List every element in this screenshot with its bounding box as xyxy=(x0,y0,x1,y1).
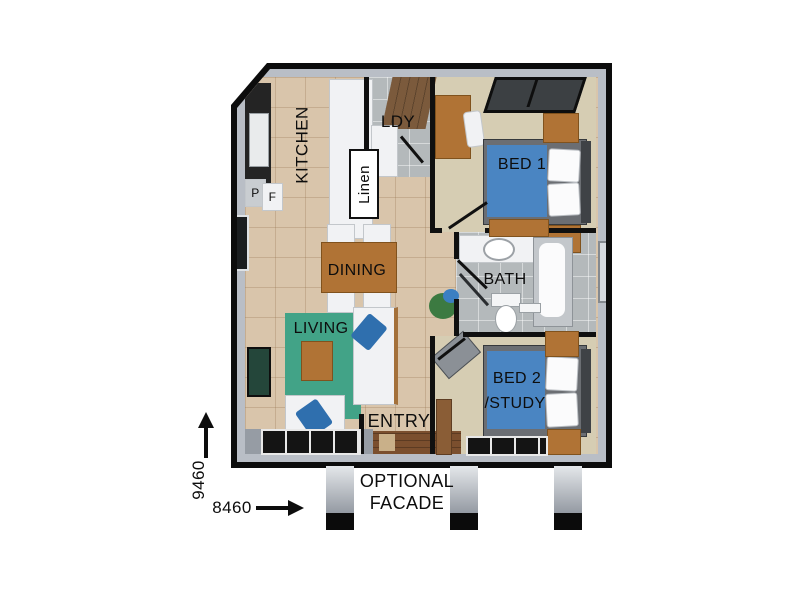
right-wall-window xyxy=(598,241,614,303)
wall-band: P F Linen xyxy=(237,69,606,462)
vertical-dimension: 9460 xyxy=(189,457,209,503)
kitchen-label: KITCHEN xyxy=(293,106,313,183)
toilet-bowl xyxy=(495,305,517,333)
wall-laundry-bed1 xyxy=(430,77,435,233)
dining-label: DINING xyxy=(323,261,391,281)
left-wall-window xyxy=(231,215,249,271)
entry-step xyxy=(379,434,395,451)
bed2-headboard xyxy=(581,349,591,433)
porch-column-base xyxy=(326,513,354,530)
entry-door-leaf xyxy=(436,399,452,455)
bath-label: BATH xyxy=(475,270,535,290)
coffee-table xyxy=(301,341,333,381)
bathtub-inner xyxy=(539,243,565,317)
horizontal-dimension: 8460 xyxy=(206,498,258,518)
bed2-bedside-top xyxy=(545,331,579,357)
fridge-label: F xyxy=(269,190,277,204)
bed2-pillow-top xyxy=(545,356,579,392)
laundry-label: LDY xyxy=(376,112,420,132)
facade-label-line1: OPTIONAL xyxy=(352,470,462,492)
wall-hall-bath-upper xyxy=(454,232,459,259)
linen-label: Linen xyxy=(356,165,373,204)
linen-cupboard: Linen xyxy=(349,149,379,219)
wall-art xyxy=(247,347,271,397)
bath-basin xyxy=(483,238,515,261)
living-windows xyxy=(261,429,361,455)
pantry-label: P xyxy=(251,186,259,200)
wall-stub xyxy=(430,228,442,233)
porch-column-base xyxy=(450,513,478,530)
bed2-mattress xyxy=(487,351,545,429)
bed2-pillow-bottom xyxy=(545,392,579,428)
porch-column xyxy=(554,466,582,516)
bed2-label: BED 2 xyxy=(485,369,549,389)
bed1-bedside-top xyxy=(543,113,579,143)
entry-label: ENTRY xyxy=(367,411,431,431)
wall-kitchen-laundry xyxy=(364,77,369,151)
bath-mat xyxy=(519,303,541,313)
up-arrow-shaft xyxy=(204,426,208,458)
right-arrow-shaft xyxy=(256,506,290,510)
kitchen-sink xyxy=(249,113,269,167)
wall-hall-bath-lower xyxy=(454,299,459,336)
floor-plan-house: P F Linen xyxy=(231,63,612,468)
bath-shelf xyxy=(489,219,549,237)
kitchen-label-box: KITCHEN xyxy=(273,97,333,192)
bed2-windows xyxy=(466,436,548,456)
porch-column xyxy=(326,466,354,516)
bed1-pillow-bottom xyxy=(547,182,581,217)
bed2-bedside-bottom xyxy=(547,429,581,455)
bed2-study-label: /STUDY xyxy=(483,394,547,414)
bed1-headboard xyxy=(581,141,591,223)
right-arrow-icon xyxy=(288,500,304,516)
facade-label-line2: FACADE xyxy=(352,492,462,514)
porch-column-base xyxy=(554,513,582,530)
wall-bed2-west xyxy=(430,336,435,454)
bed1-label: BED 1 xyxy=(491,155,553,175)
floor-area: P F Linen xyxy=(245,77,598,454)
living-label: LIVING xyxy=(287,319,355,339)
